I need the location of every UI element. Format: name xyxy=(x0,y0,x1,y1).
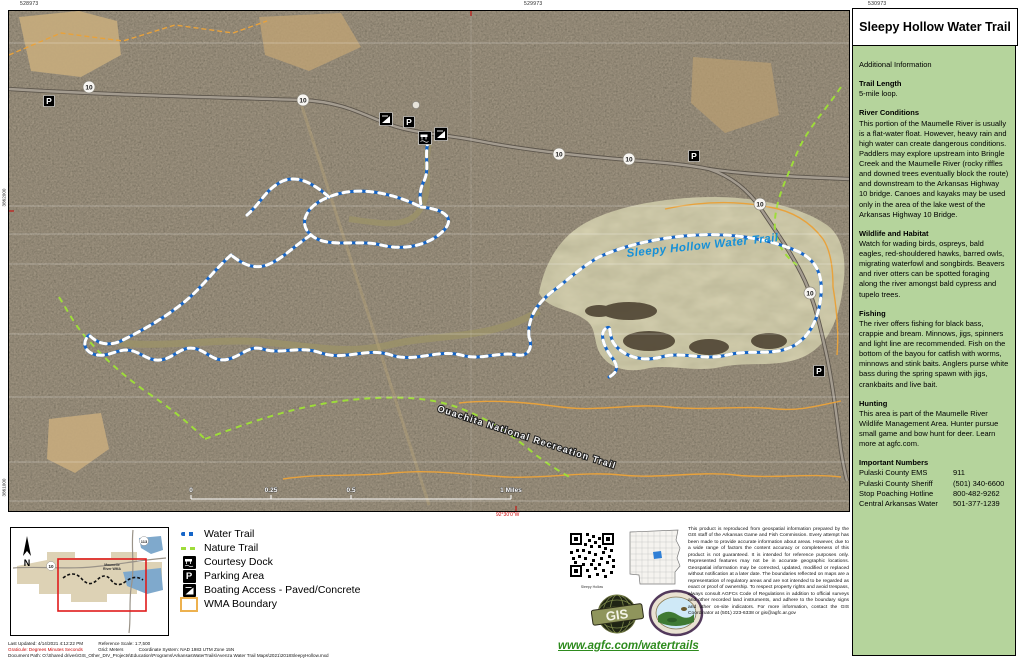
wma-boundary-swatch xyxy=(180,597,198,612)
phone-name: Pulaski County EMS xyxy=(859,468,953,478)
graticule-units: Graticule: Degrees Minutes Seconds xyxy=(8,647,83,652)
parking-letter: P xyxy=(406,117,412,127)
courtesy-dock-icon xyxy=(419,132,432,145)
highlighted-county xyxy=(653,551,662,559)
last-updated: Last Updated: 4/14/2021 4:12:22 PM xyxy=(8,641,83,646)
water-tank-dome xyxy=(413,102,420,109)
phone-number: 911 xyxy=(953,468,965,478)
phone-number: (501) 340-6600 xyxy=(953,479,1004,489)
north-arrow-icon: N xyxy=(23,536,31,568)
grid-coordinate-top: 529973 xyxy=(524,1,543,7)
phone-name: Central Arkansas Water xyxy=(859,499,953,509)
section-heading: Fishing xyxy=(859,309,1009,319)
scale-label: 0 xyxy=(189,487,193,494)
phone-row: Stop Poaching Hotline800-482-9262 xyxy=(859,489,1009,499)
section-body: This area is part of the Maumelle River … xyxy=(859,409,1009,450)
graticule-coordinate: 92°30'0"W xyxy=(496,512,519,518)
nature-trail-swatch xyxy=(180,547,198,550)
map-canvas: Sleepy Hollow Water Trail Ouachita Natio… xyxy=(9,11,849,511)
section-body: Watch for wading birds, ospreys, bald ea… xyxy=(859,239,1009,300)
watertrails-link[interactable]: www.agfc.com/watertrails xyxy=(558,640,699,652)
grid-coordinate-left: 3862000 xyxy=(2,178,7,218)
phone-row: Pulaski County Sheriff(501) 340-6600 xyxy=(859,479,1009,489)
section-heading: River Conditions xyxy=(859,108,1009,118)
qr-code-block: Sleepy Hollow xyxy=(568,531,616,589)
scale-label: 0.25 xyxy=(265,487,278,494)
section-hunting: Hunting This area is part of the Maumell… xyxy=(859,399,1009,450)
section-fishing: Fishing The river offers fishing for bla… xyxy=(859,309,1009,390)
qr-caption: Sleepy Hollow xyxy=(568,585,616,589)
grid-units: Grid: Meters xyxy=(98,647,123,652)
highway-shield: 10 xyxy=(623,153,635,165)
additional-information-panel: Additional Information Trail Length 5-mi… xyxy=(852,45,1016,656)
seal-wildlife xyxy=(681,607,687,611)
document-path: Document Path: O:\Shared drives\GIS_Othe… xyxy=(8,653,438,659)
parking-icon: P xyxy=(814,366,825,377)
legend-item-wma-boundary: WMA Boundary xyxy=(180,597,480,611)
parking-icon: P xyxy=(180,570,198,583)
north-label: N xyxy=(24,558,31,568)
legend-item-nature-trail: Nature Trail xyxy=(180,541,480,555)
phone-row: Central Arkansas Water501-377-1239 xyxy=(859,499,1009,509)
highway-shield-number: 10 xyxy=(756,201,764,208)
map-title-text: Sleepy Hollow Water Trail xyxy=(859,20,1011,34)
inset-highway-number: 10 xyxy=(48,564,54,569)
coordinate-system: Coordinate System: NAD 1983 UTM Zone 15N xyxy=(139,647,235,652)
parking-letter: P xyxy=(46,96,52,106)
grid-coordinate-top: 528973 xyxy=(20,1,39,7)
boat-ramp-icon xyxy=(380,113,393,126)
locator-inset-map: 10 113 Maumelle River WMA N xyxy=(10,527,169,636)
gis-logo: GIS xyxy=(591,593,645,642)
arkansas-locator-map xyxy=(628,528,683,591)
legend-label: Parking Area xyxy=(204,570,264,582)
scale-label: 0.5 xyxy=(346,487,355,494)
section-heading: Hunting xyxy=(859,399,1009,409)
legend-label: WMA Boundary xyxy=(204,598,277,610)
legend-item-boating-access: Boating Access - Paved/Concrete xyxy=(180,583,480,597)
parking-icon: P xyxy=(404,117,415,128)
legend-label: Boating Access - Paved/Concrete xyxy=(204,584,360,596)
highway-shield: 10 xyxy=(297,94,309,106)
additional-information-label: Additional Information xyxy=(859,60,1009,70)
highway-shield-number: 10 xyxy=(806,290,814,297)
water-trail-swatch xyxy=(180,532,198,536)
phone-number: 501-377-1239 xyxy=(953,499,1000,509)
parking-letter: P xyxy=(183,570,196,583)
boat-ramp-icon xyxy=(180,584,198,597)
highway-shield: 10 xyxy=(754,198,766,210)
phone-name: Pulaski County Sheriff xyxy=(859,479,953,489)
legend-label: Nature Trail xyxy=(204,542,258,554)
boat-ramp-icon xyxy=(435,128,448,141)
inset-highway-number: 113 xyxy=(141,539,148,544)
parking-icon: P xyxy=(44,96,55,107)
legend-item-courtesy-dock: Courtesy Dock xyxy=(180,555,480,569)
highway-shield: 10 xyxy=(83,81,95,93)
section-heading: Important Numbers xyxy=(859,458,1009,468)
reference-scale: Reference Scale: 1:7,500 xyxy=(98,641,150,646)
disclaimer-text: This product is reproduced from geospati… xyxy=(688,527,849,639)
map-document: Sleepy Hollow Water Trail Ouachita Natio… xyxy=(0,0,1024,663)
info-sidebar: Additional Information Trail Length 5-mi… xyxy=(852,8,1018,656)
section-body: The river offers fishing for black bass,… xyxy=(859,319,1009,390)
inset-canvas: 10 113 Maumelle River WMA N xyxy=(11,528,168,635)
section-wildlife-habitat: Wildlife and Habitat Watch for wading bi… xyxy=(859,229,1009,300)
phone-row: Pulaski County EMS911 xyxy=(859,468,1009,478)
highway-shield-number: 10 xyxy=(625,156,633,163)
legend-label: Courtesy Dock xyxy=(204,556,273,568)
section-trail-length: Trail Length 5-mile loop. xyxy=(859,79,1009,99)
parking-letter: P xyxy=(691,151,697,161)
highway-shield: 10 xyxy=(804,287,816,299)
gis-logo-text: GIS xyxy=(605,606,630,624)
legend: Water Trail Nature Trail Courtesy Dock P… xyxy=(180,527,480,611)
phone-number: 800-482-9262 xyxy=(953,489,1000,499)
highway-shield-number: 10 xyxy=(299,97,307,104)
parking-icon: P xyxy=(689,151,700,162)
courtesy-dock-icon xyxy=(180,556,198,569)
main-map: Sleepy Hollow Water Trail Ouachita Natio… xyxy=(8,10,850,512)
section-body: This portion of the Maumelle River is us… xyxy=(859,119,1009,220)
qr-code xyxy=(568,531,616,579)
map-metadata: Last Updated: 4/14/2021 4:12:22 PM Refer… xyxy=(8,641,438,660)
highway-shield-number: 10 xyxy=(85,84,93,91)
section-body: 5-mile loop. xyxy=(859,89,1009,99)
map-title: Sleepy Hollow Water Trail xyxy=(852,8,1018,46)
legend-item-parking: P Parking Area xyxy=(180,569,480,583)
legend-label: Water Trail xyxy=(204,528,254,540)
section-river-conditions: River Conditions This portion of the Mau… xyxy=(859,108,1009,219)
section-important-numbers: Important Numbers Pulaski County EMS911 … xyxy=(859,458,1009,509)
seal-fish xyxy=(667,618,677,623)
scale-label: 1 Miles xyxy=(500,487,522,494)
parking-letter: P xyxy=(816,366,822,376)
section-heading: Trail Length xyxy=(859,79,1009,89)
legend-item-water-trail: Water Trail xyxy=(180,527,480,541)
highway-shield: 10 xyxy=(553,148,565,160)
grid-coordinate-left: 3861000 xyxy=(2,468,7,508)
highway-shield-number: 10 xyxy=(555,151,563,158)
phone-name: Stop Poaching Hotline xyxy=(859,489,953,499)
inset-wma-label-line2: River WMA xyxy=(103,567,121,571)
grid-coordinate-top: 530973 xyxy=(868,1,887,7)
section-heading: Wildlife and Habitat xyxy=(859,229,1009,239)
